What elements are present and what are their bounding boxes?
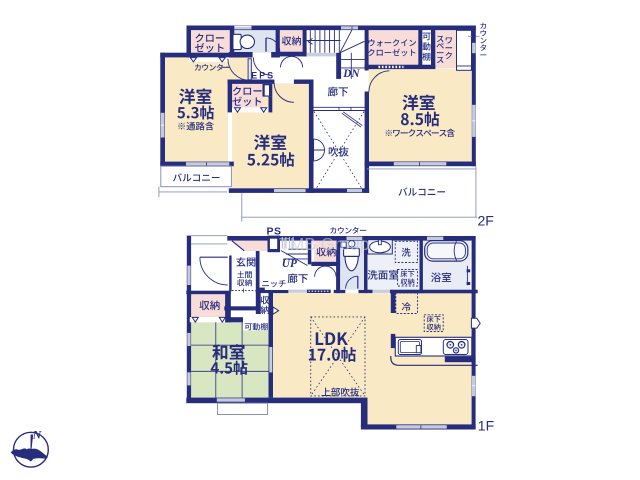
svg-text:TMB Group: TMB Group — [279, 234, 369, 254]
svg-text:UP: UP — [282, 258, 297, 270]
svg-text:1F: 1F — [478, 418, 494, 434]
svg-text:DN: DN — [342, 68, 360, 80]
svg-text:N: N — [32, 428, 43, 442]
svg-text:EPS: EPS — [251, 71, 275, 81]
svg-text:2F: 2F — [478, 213, 494, 229]
